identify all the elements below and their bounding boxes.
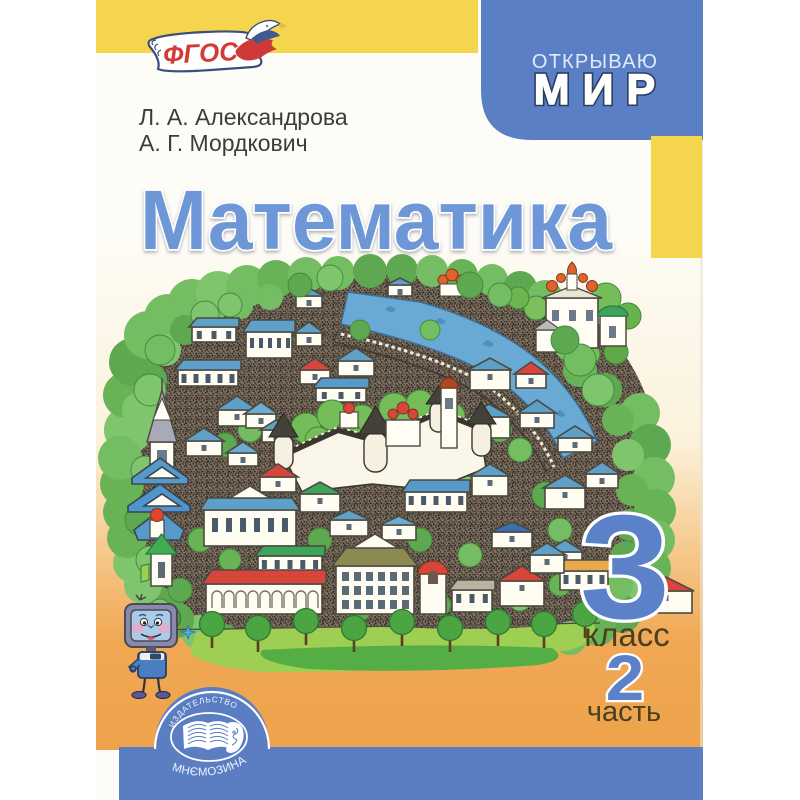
svg-text:ФГОС: ФГОС (162, 36, 240, 70)
svg-text:А. Г. Мордкович: А. Г. Мордкович (139, 130, 308, 156)
svg-text:МИР: МИР (534, 66, 668, 114)
svg-text:Л. А. Александрова: Л. А. Александрова (139, 104, 348, 130)
svg-text:часть: часть (587, 696, 661, 728)
svg-text:Математика: Математика (140, 173, 613, 267)
